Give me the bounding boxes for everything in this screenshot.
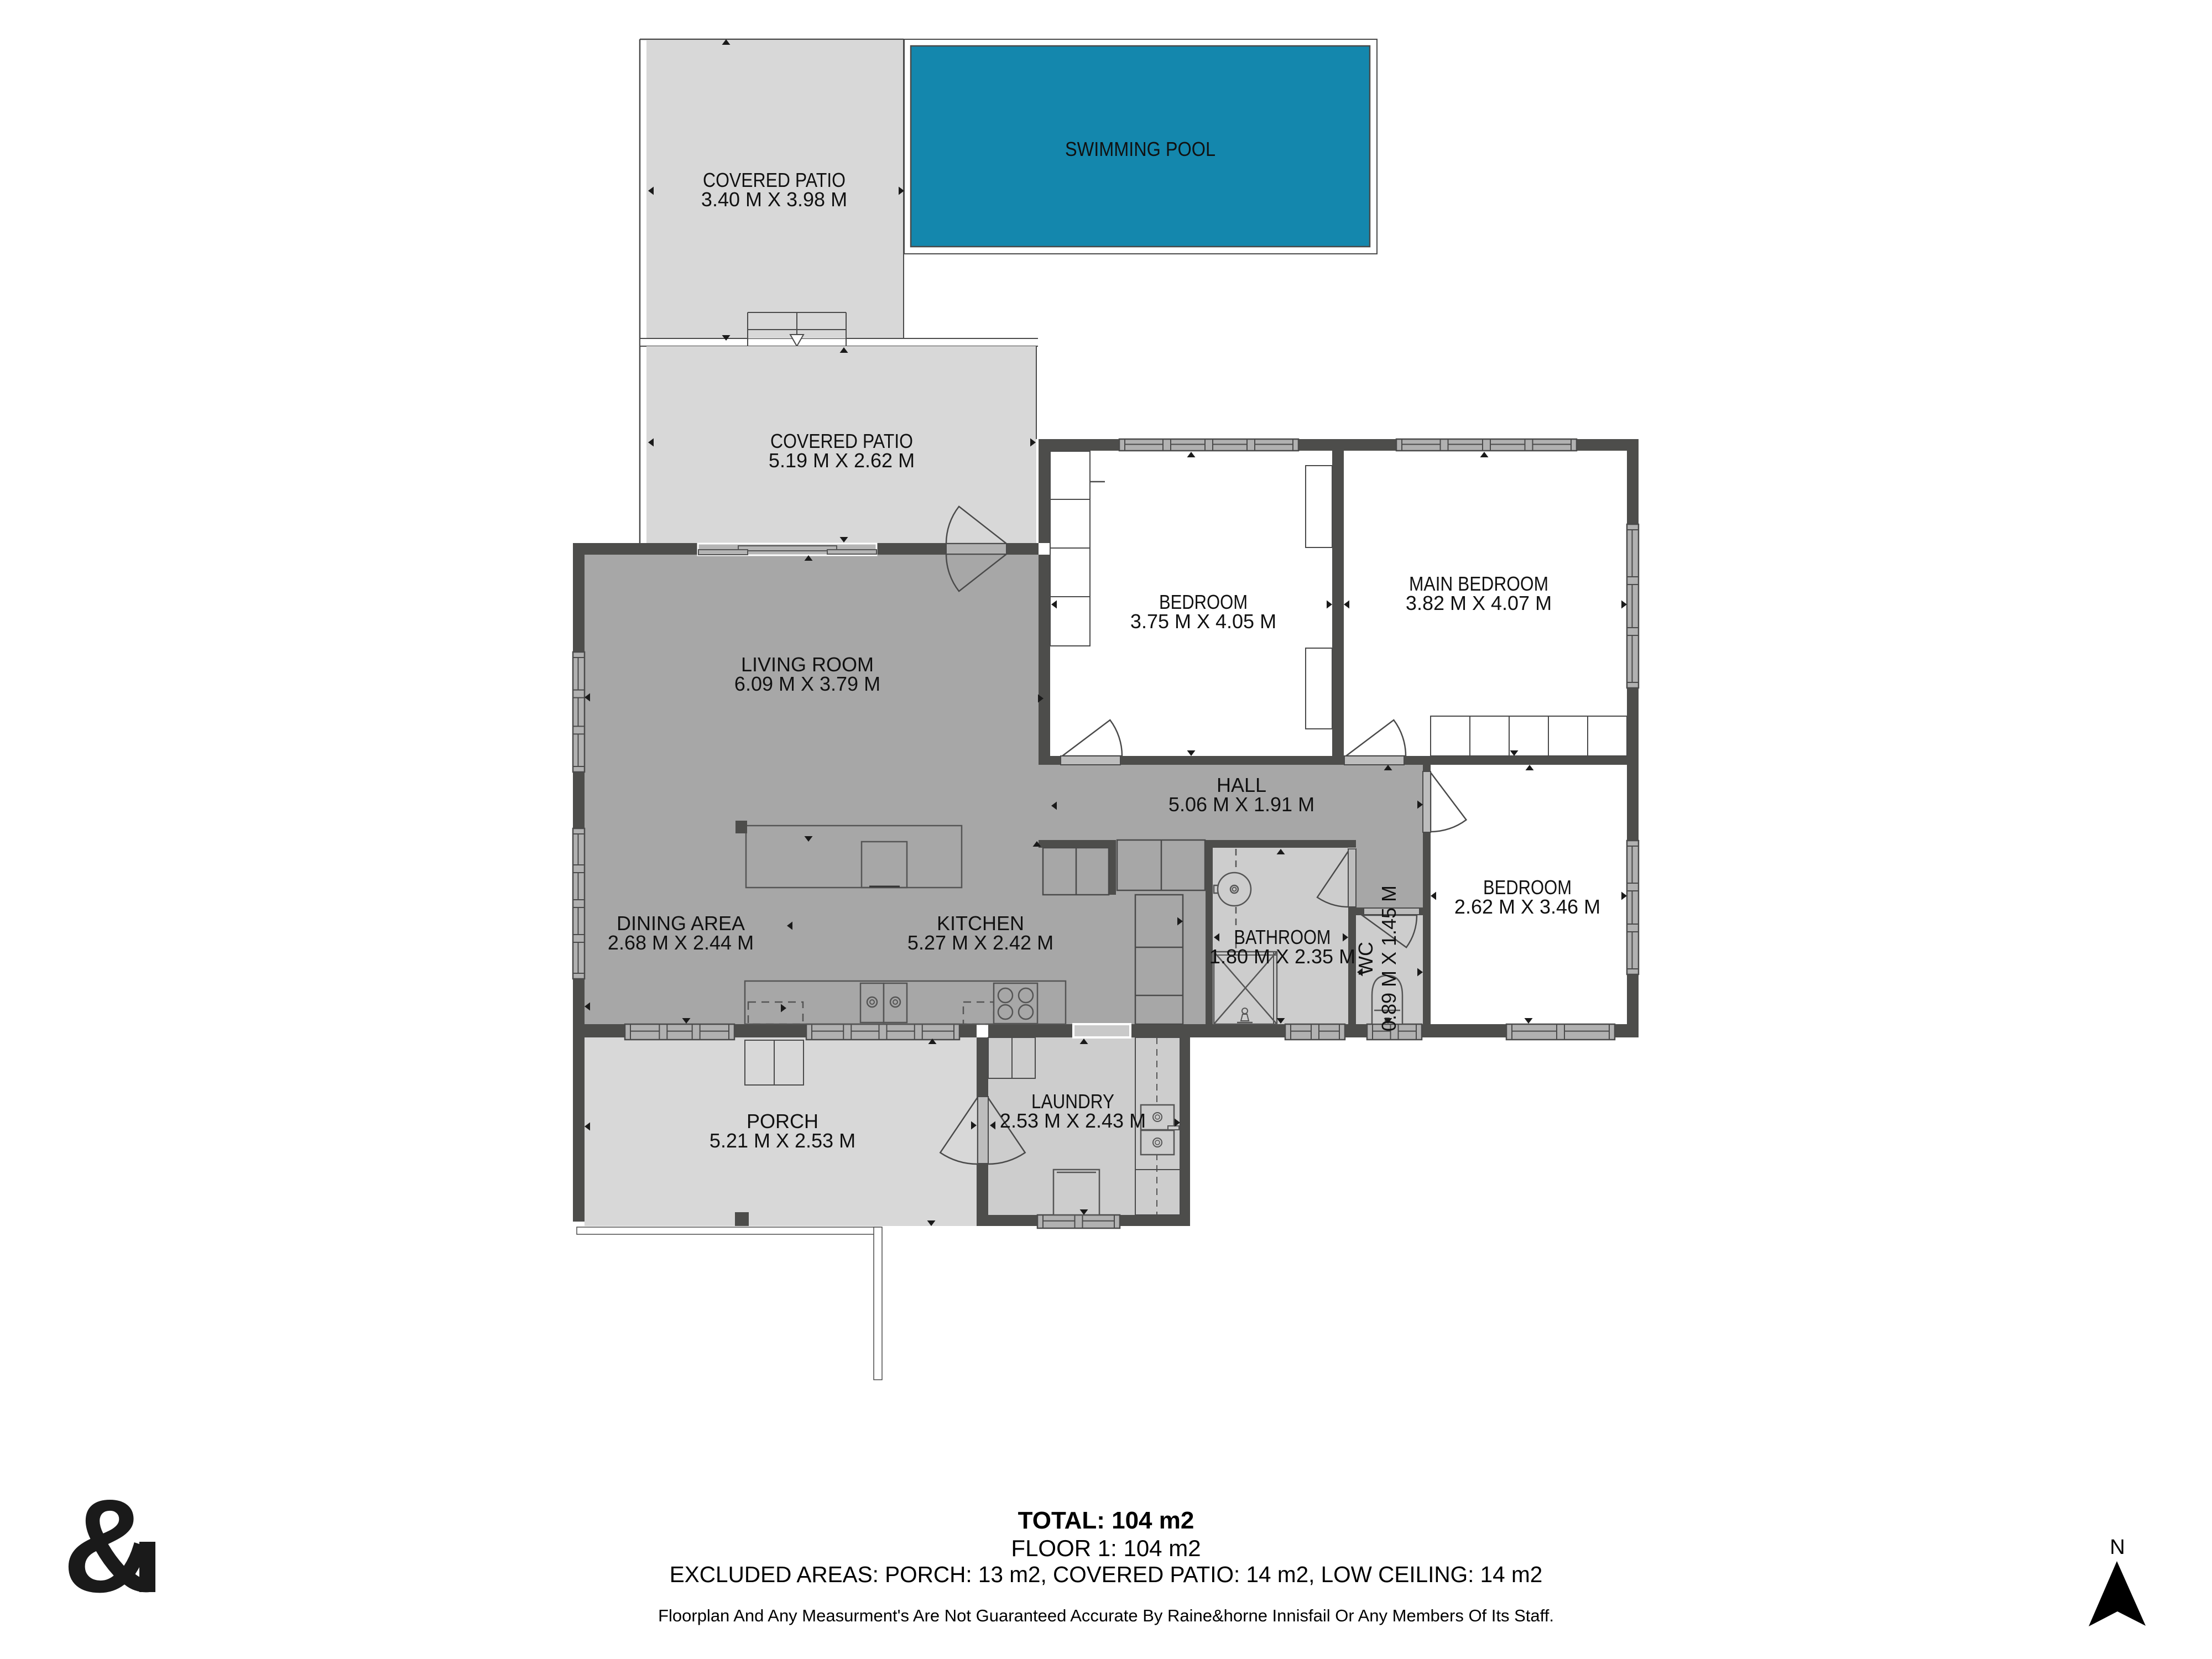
svg-text:EXCLUDED AREAS: PORCH: 13 m2,: EXCLUDED AREAS: PORCH: 13 m2, COVERED PA…: [670, 1562, 1542, 1587]
svg-text:FLOOR 1: 104 m2: FLOOR 1: 104 m2: [1011, 1535, 1201, 1561]
svg-text:WC: WC: [1354, 942, 1377, 975]
svg-text:TOTAL: 104 m2: TOTAL: 104 m2: [1018, 1507, 1194, 1534]
svg-text:3.82 M X 4.07 M: 3.82 M X 4.07 M: [1406, 592, 1552, 614]
svg-text:Floorplan And Any Measurment's: Floorplan And Any Measurment's Are Not G…: [658, 1606, 1554, 1625]
svg-text:5.21 M X 2.53 M: 5.21 M X 2.53 M: [709, 1129, 855, 1152]
svg-text:3.40 M X 3.98 M: 3.40 M X 3.98 M: [701, 188, 847, 211]
svg-text:2.68 M X 2.44 M: 2.68 M X 2.44 M: [608, 931, 754, 954]
svg-text:5.06 M X 1.91 M: 5.06 M X 1.91 M: [1168, 793, 1314, 816]
svg-text:2.62 M X 3.46 M: 2.62 M X 3.46 M: [1454, 895, 1600, 918]
svg-text:N: N: [2110, 1536, 2125, 1559]
svg-text:6.09 M X 3.79 M: 6.09 M X 3.79 M: [734, 672, 880, 695]
svg-text:SWIMMING POOL: SWIMMING POOL: [1065, 138, 1215, 160]
svg-text:2.53 M X 2.43 M: 2.53 M X 2.43 M: [1000, 1109, 1146, 1132]
svg-text:5.27 M X 2.42 M: 5.27 M X 2.42 M: [907, 931, 1053, 954]
svg-text:0.89 M X 1.45 M: 0.89 M X 1.45 M: [1378, 885, 1400, 1031]
svg-text:5.19 M X 2.62 M: 5.19 M X 2.62 M: [769, 449, 915, 472]
svg-text:1.80 M X 2.35 M: 1.80 M X 2.35 M: [1209, 945, 1355, 968]
svg-text:3.75 M X 4.05 M: 3.75 M X 4.05 M: [1130, 610, 1276, 633]
